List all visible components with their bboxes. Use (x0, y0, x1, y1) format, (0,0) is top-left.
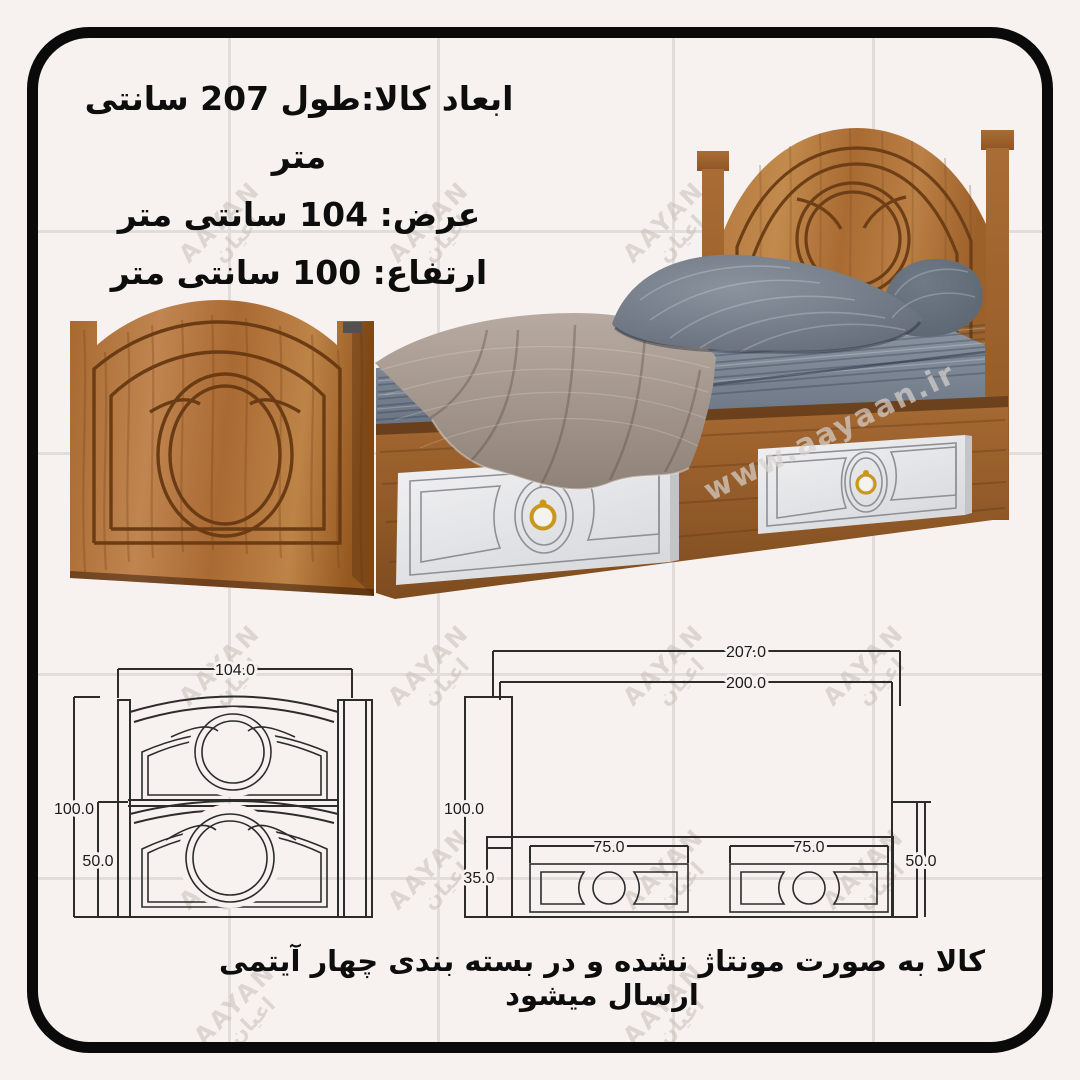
side-drawer-1 (530, 864, 688, 912)
side-drawer1-width-label: 75.0 (593, 839, 624, 856)
footboard-panel (70, 300, 374, 596)
drawer-2-handle-plate (860, 476, 872, 492)
headboard-right-post-cap (981, 130, 1014, 150)
headboard-left-post-cap (697, 151, 729, 171)
footboard-metal-bracket (343, 322, 362, 333)
technical-drawings: 104.0 100.0 50.0 (40, 630, 1060, 950)
side-drawer2-width-label: 75.0 (793, 839, 824, 856)
side-view-drawing: 207.0 200.0 100.0 35.0 75.0 75.0 50.0 (444, 644, 937, 917)
side-rail (487, 837, 893, 917)
side-drawer-2 (730, 864, 888, 912)
footboard (70, 300, 374, 596)
shipping-note: کالا به صورت مونتاژ نشده و در بسته بندی … (202, 944, 1002, 1012)
side-height-label: 100.0 (444, 801, 484, 818)
bed-photo (40, 110, 1040, 670)
side-inner-length-label: 200.0 (726, 675, 766, 692)
footboard-side-shading (352, 321, 374, 596)
drawer-2-side (965, 435, 972, 515)
side-base-height-label: 35.0 (463, 870, 494, 887)
front-headboard-panel (142, 707, 327, 800)
front-height-label: 100.0 (54, 801, 94, 818)
side-view-outline (465, 697, 917, 917)
front-footboard-height-label: 50.0 (82, 853, 113, 870)
side-footboard-height-label: 50.0 (905, 853, 936, 870)
side-dimension-lines (487, 651, 931, 917)
front-footboard-panel (142, 804, 327, 908)
front-view-drawing: 104.0 100.0 50.0 (54, 662, 372, 917)
product-card: { "spec": { "line1": "ابعاد کالا:طول 207… (0, 0, 1080, 1080)
